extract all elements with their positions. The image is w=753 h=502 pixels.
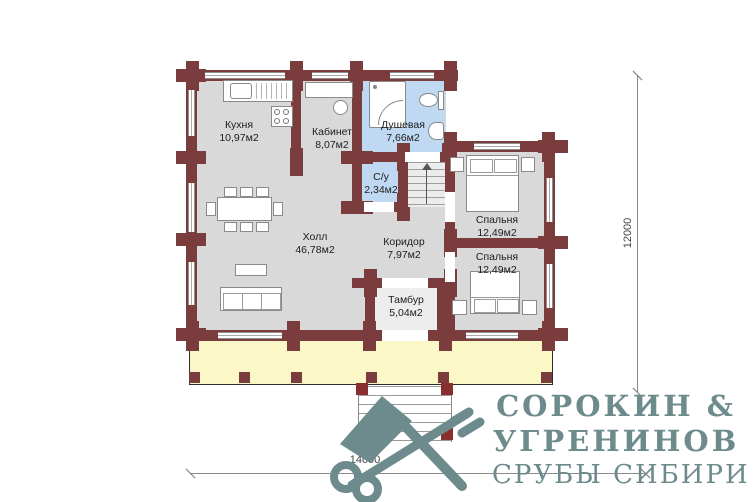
window-hall-west-2: [188, 262, 195, 305]
chair: [206, 202, 216, 216]
room-name: Кабинет: [295, 126, 369, 139]
blanket-line: [467, 175, 518, 176]
toilet-tank: [438, 91, 444, 110]
office-chair: [333, 100, 348, 115]
terrace-post: [541, 372, 552, 383]
log-end: [363, 321, 376, 351]
room-label-bedroom1: Спальня 12,49м2: [460, 214, 534, 240]
log-end: [341, 151, 373, 164]
door-tambour-inner: [382, 278, 428, 288]
window-kitchen-west: [188, 90, 195, 136]
room-name: Спальня: [460, 214, 534, 227]
log-end: [287, 321, 300, 351]
blanket-line: [471, 297, 519, 298]
logo-name-line1: СОРОКИН &: [492, 389, 740, 424]
log-end: [538, 328, 568, 341]
pillow: [474, 299, 496, 313]
room-name: Тамбур: [369, 294, 443, 307]
window-hall-bottom: [218, 332, 282, 339]
chair: [240, 187, 253, 197]
door-wc: [364, 202, 394, 212]
sofa-cushion: [242, 293, 262, 310]
terrace-post: [438, 372, 449, 383]
nightstand: [452, 300, 467, 315]
window-hall-west-1: [188, 183, 195, 232]
terrace-post: [366, 372, 377, 383]
room-area: 2,34м2: [344, 184, 418, 197]
bed: [466, 155, 519, 212]
log-end: [538, 140, 568, 153]
kitchen-drainer: [256, 83, 289, 99]
room-area: 8,07м2: [295, 139, 369, 152]
nightstand: [450, 157, 464, 172]
window-shower-top: [390, 72, 434, 79]
sofa-cushion: [261, 293, 281, 310]
terrace-post: [239, 372, 250, 383]
room-label-corridor: Коридор 7,97м2: [367, 236, 441, 262]
door-bedroom1: [445, 192, 455, 222]
log-end: [439, 321, 452, 351]
logo-tagline: СРУБЫ СИБИРИ: [492, 459, 740, 492]
log-end: [176, 233, 206, 246]
room-label-hall: Холл 46,78м2: [278, 231, 352, 257]
room-area: 5,04м2: [369, 307, 443, 320]
room-area: 7,66м2: [366, 132, 440, 145]
toilet: [419, 93, 438, 107]
sofa: [220, 287, 282, 311]
stairs-up-arrow-icon: [426, 168, 427, 204]
dimension-line-vertical: [637, 75, 638, 392]
room-label-tambour: Тамбур 5,04м2: [369, 294, 443, 320]
room-name: Кухня: [202, 119, 276, 132]
log-end: [364, 269, 377, 297]
crossed-axe-and-key-icon: [322, 386, 494, 502]
door-bedroom2: [445, 252, 455, 282]
room-label-bedroom2: Спальня 12,49м2: [460, 251, 534, 277]
log-end: [538, 236, 568, 249]
log-end: [290, 148, 303, 176]
log-end: [176, 69, 206, 82]
window-kitchen-top: [205, 72, 285, 79]
bed: [470, 271, 520, 314]
room-area: 7,97м2: [367, 249, 441, 262]
chair: [256, 222, 269, 232]
pillow: [494, 159, 517, 173]
chair: [273, 202, 283, 216]
log-end: [176, 328, 206, 341]
chair: [224, 187, 237, 197]
room-label-kitchen: Кухня 10,97м2: [202, 119, 276, 145]
window-office-top: [312, 72, 348, 79]
nightstand: [521, 157, 535, 172]
door-entrance: [382, 330, 428, 341]
room-name: Спальня: [460, 251, 534, 264]
log-end: [444, 61, 457, 91]
room-area: 46,78м2: [278, 244, 352, 257]
room-area: 12,49м2: [460, 264, 534, 277]
chair: [224, 222, 237, 232]
log-end: [176, 151, 206, 164]
terrace-post: [291, 372, 302, 383]
logo-name-line2: УГРЕНИНОВ: [492, 424, 740, 459]
dining-table: [217, 197, 272, 221]
chair: [240, 222, 253, 232]
chair: [256, 187, 269, 197]
room-label-wc: С/у 2,34м2: [344, 171, 418, 197]
terrace-post: [189, 372, 200, 383]
stairs-up-arrowhead-icon: [422, 163, 432, 170]
room-label-shower: Душевая 7,66м2: [366, 119, 440, 145]
sofa-cushion: [223, 293, 243, 310]
desk: [305, 82, 353, 98]
pillow: [470, 159, 493, 173]
nightstand: [522, 300, 537, 315]
room-name: Холл: [278, 231, 352, 244]
coffee-table: [235, 264, 267, 276]
door-shower: [405, 152, 440, 162]
room-name: Коридор: [367, 236, 441, 249]
window-bedroom1-top: [474, 143, 520, 150]
window-bedroom2-bottom: [466, 332, 518, 339]
room-area: 12,49м2: [460, 227, 534, 240]
pillow: [497, 299, 519, 313]
window-bedroom2-east: [546, 264, 553, 308]
room-area: 10,97м2: [202, 132, 276, 145]
floor-plan-sheet: Кухня 10,97м2 Кабинет 8,07м2 Душевая 7,6…: [0, 0, 753, 502]
kitchen-sink: [230, 83, 252, 99]
logo-text: СОРОКИН & УГРЕНИНОВ СРУБЫ СИБИРИ: [492, 389, 740, 492]
window-bedroom1-east: [546, 178, 553, 222]
room-name: С/у: [344, 171, 418, 184]
dimension-value-vertical: 12000: [622, 199, 634, 267]
room-label-office: Кабинет 8,07м2: [295, 126, 369, 152]
shower-head-icon: [373, 85, 377, 89]
room-name: Душевая: [366, 119, 440, 132]
